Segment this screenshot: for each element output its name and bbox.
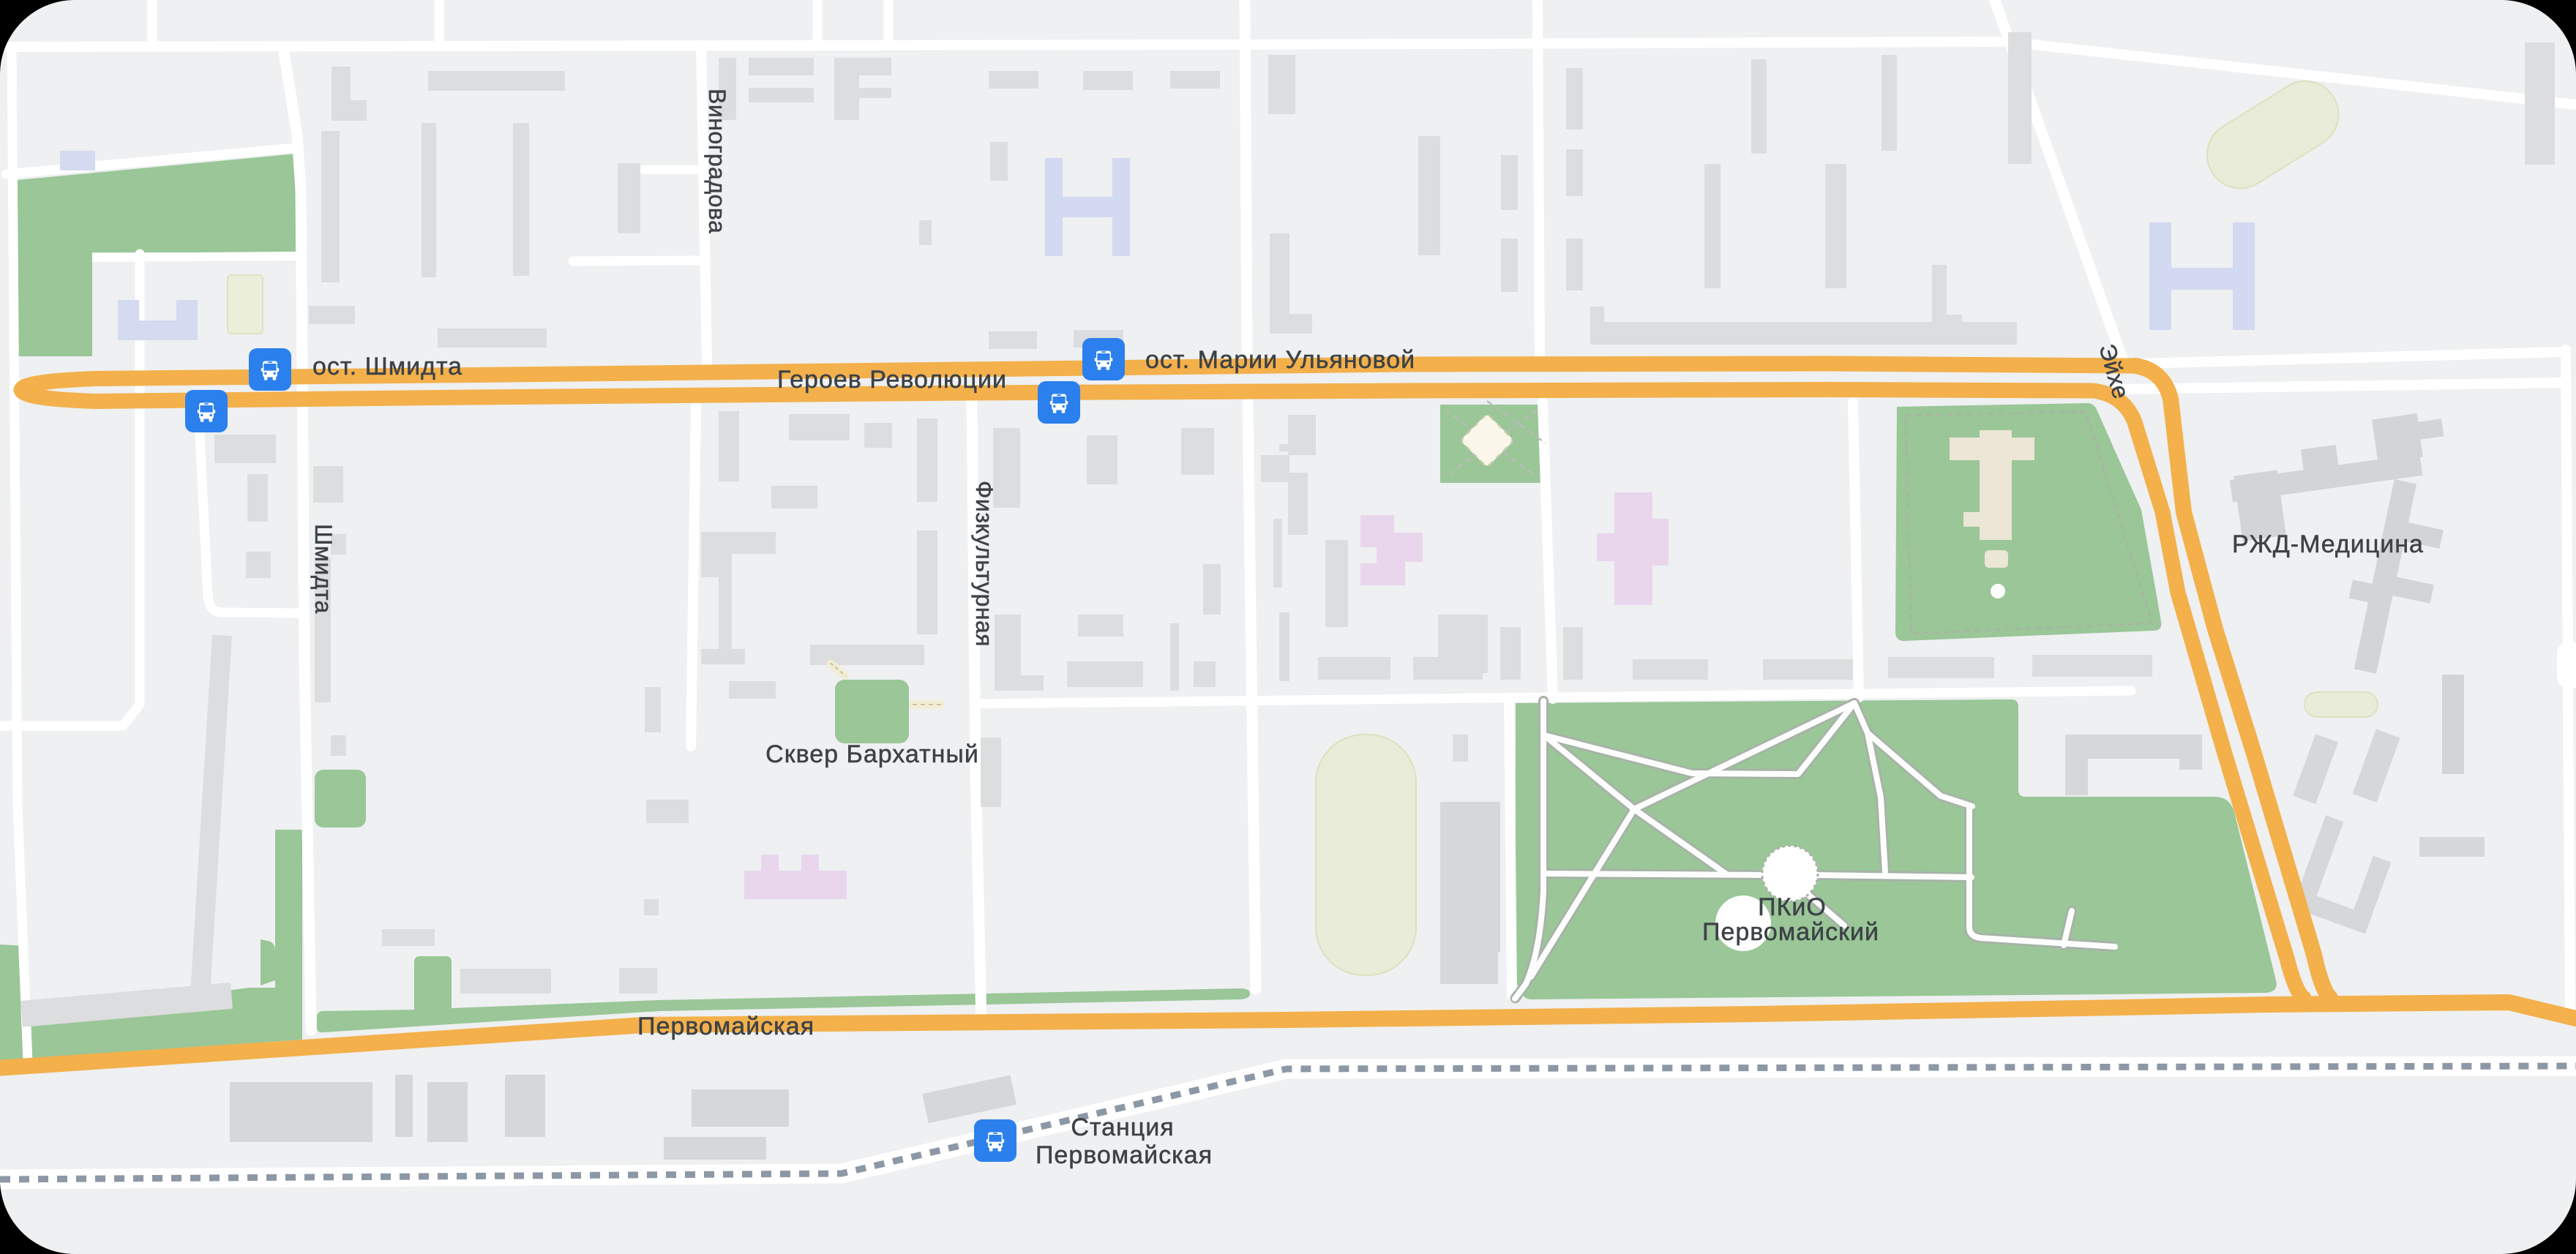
svg-text:Станция: Станция — [1071, 1114, 1174, 1141]
svg-text:ост. Марии Ульяновой: ост. Марии Ульяновой — [1145, 346, 1415, 374]
svg-text:Физкультурная: Физкультурная — [971, 481, 997, 647]
svg-text:ост. Шмидта: ост. Шмидта — [312, 353, 463, 380]
svg-text:ПКиО: ПКиО — [1758, 893, 1827, 921]
svg-text:Виноградова: Виноградова — [704, 89, 730, 233]
svg-text:Героев Революции: Героев Революции — [777, 366, 1007, 394]
svg-text:Первомайский: Первомайский — [1702, 918, 1879, 946]
svg-text:Первомайская: Первомайская — [637, 1013, 815, 1040]
svg-text:Сквер Бархатный: Сквер Бархатный — [765, 740, 979, 768]
svg-text:Шмидта: Шмидта — [310, 524, 337, 614]
svg-text:РЖД-Медицина: РЖД-Медицина — [2232, 530, 2424, 558]
svg-text:Первомайская: Первомайская — [1036, 1141, 1213, 1169]
